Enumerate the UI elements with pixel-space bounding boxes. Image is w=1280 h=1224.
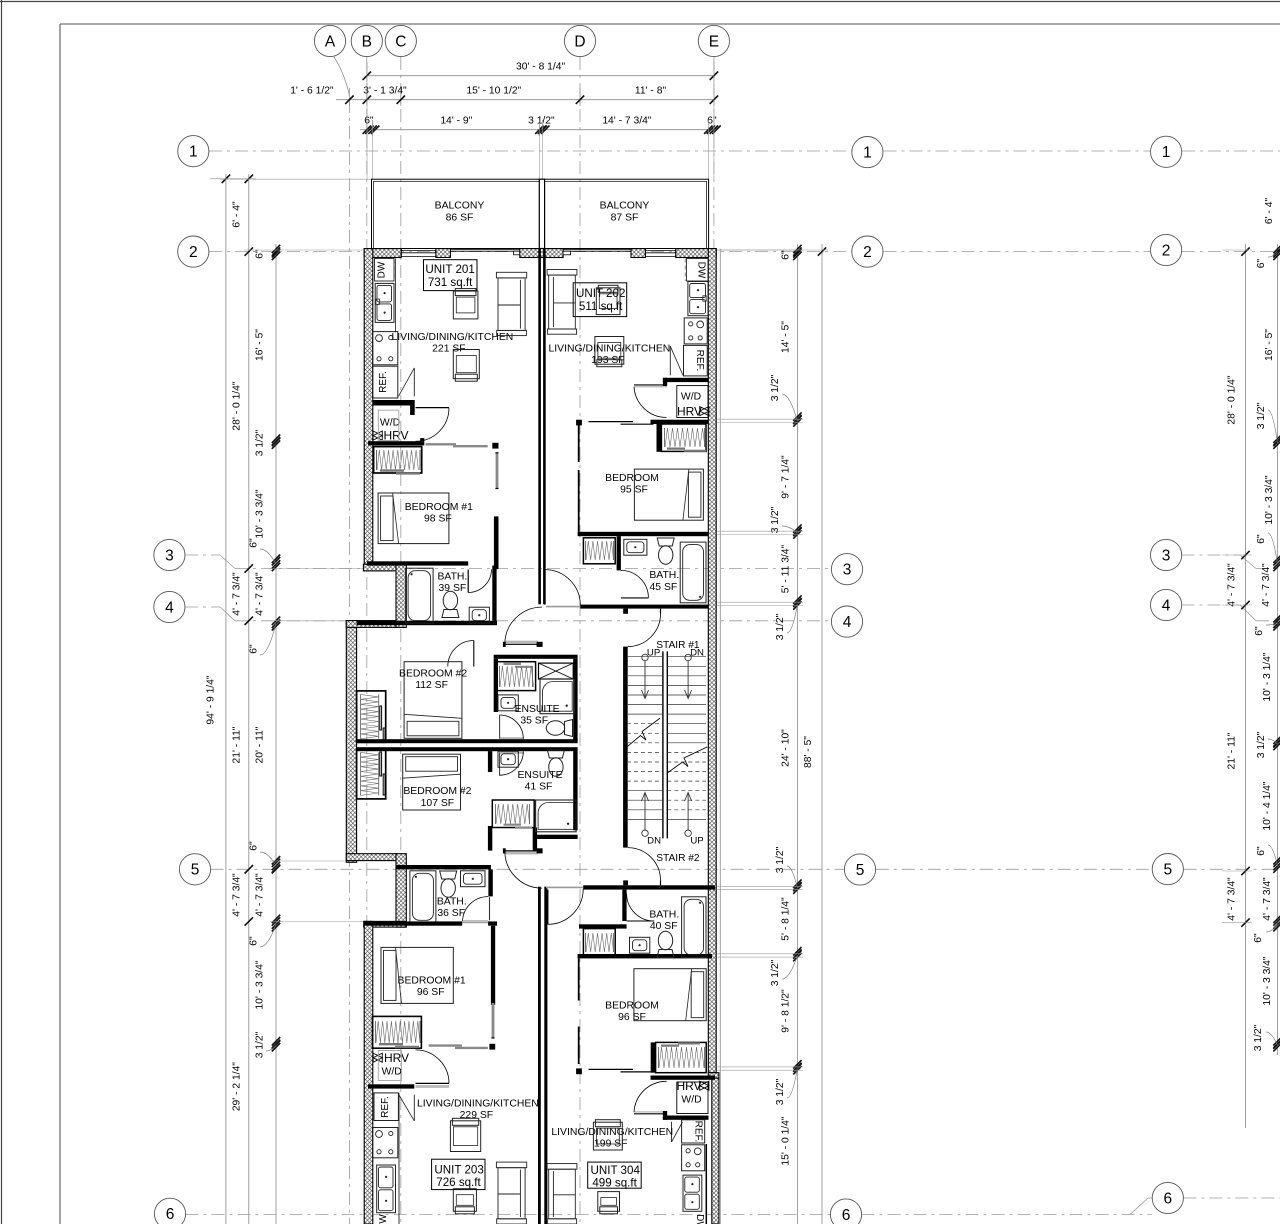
svg-text:D: D — [574, 33, 585, 50]
svg-text:6' - 4": 6' - 4" — [1264, 198, 1275, 225]
svg-text:3 1/2": 3 1/2" — [770, 374, 781, 401]
svg-text:DN: DN — [690, 648, 704, 659]
svg-text:1: 1 — [1162, 144, 1171, 161]
svg-text:4: 4 — [843, 614, 852, 631]
svg-text:86 SF: 86 SF — [446, 213, 474, 224]
svg-text:6' - 4": 6' - 4" — [232, 201, 243, 228]
svg-text:5: 5 — [191, 862, 200, 879]
svg-text:W/D: W/D — [681, 1095, 701, 1106]
svg-text:28' - 0 1/4": 28' - 0 1/4" — [232, 381, 243, 430]
svg-text:45 SF: 45 SF — [650, 582, 678, 593]
svg-text:229 SF: 229 SF — [460, 1110, 494, 1121]
svg-text:REF.: REF. — [378, 371, 389, 393]
svg-text:21' - 11": 21' - 11" — [1227, 732, 1238, 769]
svg-text:3 1/2": 3 1/2" — [255, 429, 266, 456]
svg-text:BEDROOM #2: BEDROOM #2 — [403, 786, 471, 797]
svg-text:112 SF: 112 SF — [415, 680, 448, 691]
svg-text:3 1/2": 3 1/2" — [775, 613, 786, 640]
svg-text:14' - 9": 14' - 9" — [440, 115, 472, 126]
svg-text:88' - 5": 88' - 5" — [803, 736, 814, 768]
svg-text:6": 6" — [1254, 626, 1265, 636]
svg-text:BEDROOM: BEDROOM — [605, 1000, 659, 1011]
svg-text:3 1/2": 3 1/2" — [1253, 1024, 1264, 1051]
svg-text:B: B — [362, 33, 372, 50]
svg-text:6: 6 — [842, 1207, 851, 1224]
svg-text:1' - 6 1/2": 1' - 6 1/2" — [290, 85, 334, 96]
svg-text:96 SF: 96 SF — [618, 1012, 646, 1023]
svg-text:HRV: HRV — [676, 1079, 701, 1093]
svg-text:726 sq.ft: 726 sq.ft — [436, 1176, 481, 1189]
svg-text:6": 6" — [781, 250, 792, 260]
svg-text:UP: UP — [647, 648, 660, 659]
svg-text:20' - 11": 20' - 11" — [255, 726, 266, 763]
svg-text:BEDROOM #1: BEDROOM #1 — [405, 502, 473, 513]
svg-text:499 sq.ft: 499 sq.ft — [592, 1176, 637, 1189]
svg-text:6": 6" — [249, 841, 260, 851]
svg-text:3: 3 — [843, 562, 852, 579]
svg-text:3 1/2": 3 1/2" — [770, 506, 781, 533]
svg-text:4' - 7 3/4": 4' - 7 3/4" — [255, 572, 266, 616]
svg-text:16' - 5": 16' - 5" — [255, 329, 266, 361]
svg-text:98 SF: 98 SF — [424, 513, 452, 524]
svg-text:4' - 7 3/4": 4' - 7 3/4" — [232, 572, 243, 616]
svg-text:5: 5 — [856, 862, 865, 879]
svg-text:4' - 7 3/4": 4' - 7 3/4" — [1227, 563, 1238, 607]
svg-text:4' - 7 3/4": 4' - 7 3/4" — [1227, 877, 1238, 921]
svg-text:W/D: W/D — [382, 1067, 402, 1078]
svg-text:30' - 8 1/4": 30' - 8 1/4" — [516, 62, 565, 73]
svg-text:REF.: REF. — [694, 350, 705, 372]
svg-text:15' - 10 1/2": 15' - 10 1/2" — [466, 85, 521, 96]
svg-text:3' - 1 3/4": 3' - 1 3/4" — [363, 85, 407, 96]
svg-text:4: 4 — [1162, 597, 1171, 614]
svg-text:DW: DW — [694, 1214, 705, 1224]
svg-text:5: 5 — [1163, 861, 1172, 878]
svg-text:10' - 3 1/4": 10' - 3 1/4" — [1262, 652, 1273, 701]
svg-text:4' - 7 3/4": 4' - 7 3/4" — [1261, 563, 1272, 607]
svg-text:9' - 7 1/4": 9' - 7 1/4" — [781, 455, 792, 499]
svg-text:BEDROOM: BEDROOM — [605, 473, 659, 484]
svg-text:6": 6" — [1256, 846, 1267, 856]
svg-text:10' - 3 3/4": 10' - 3 3/4" — [1262, 956, 1273, 1005]
svg-text:3 1/2": 3 1/2" — [775, 846, 786, 873]
svg-text:28' - 0 1/4": 28' - 0 1/4" — [1227, 375, 1238, 424]
svg-text:107 SF: 107 SF — [421, 798, 455, 809]
svg-text:4: 4 — [165, 599, 174, 616]
svg-text:3 1/2": 3 1/2" — [1256, 402, 1267, 429]
svg-text:3 1/2": 3 1/2" — [775, 1078, 786, 1105]
svg-text:21' - 11": 21' - 11" — [232, 726, 243, 763]
svg-text:4' - 7 3/4": 4' - 7 3/4" — [232, 873, 243, 917]
svg-text:W/D: W/D — [681, 392, 701, 403]
svg-text:UP: UP — [690, 835, 703, 846]
svg-text:16' - 5": 16' - 5" — [1264, 329, 1275, 361]
svg-text:3 1/2": 3 1/2" — [528, 115, 555, 126]
svg-text:HRV: HRV — [677, 404, 702, 418]
svg-text:LIVING/DINING/KITCHEN: LIVING/DINING/KITCHEN — [391, 332, 513, 343]
svg-text:DN: DN — [647, 835, 661, 846]
svg-text:REF.: REF. — [380, 1096, 391, 1118]
svg-text:1: 1 — [863, 144, 872, 161]
svg-text:6": 6" — [1256, 534, 1267, 544]
svg-text:24' - 10": 24' - 10" — [781, 729, 792, 767]
svg-text:2: 2 — [1162, 242, 1171, 259]
svg-text:W/D: W/D — [380, 418, 400, 429]
svg-text:6": 6" — [1256, 258, 1267, 268]
svg-text:BATH.: BATH. — [437, 897, 467, 908]
svg-text:REF.: REF. — [693, 1121, 704, 1143]
svg-text:35 SF: 35 SF — [520, 715, 548, 726]
svg-text:10' - 3 3/4": 10' - 3 3/4" — [255, 489, 266, 538]
svg-text:BATH.: BATH. — [649, 910, 679, 921]
svg-text:BATH.: BATH. — [437, 572, 467, 583]
svg-text:6": 6" — [249, 936, 260, 946]
svg-text:6": 6" — [249, 538, 260, 548]
svg-text:221 SF: 221 SF — [432, 343, 466, 354]
svg-text:10' - 3 3/4": 10' - 3 3/4" — [255, 960, 266, 1009]
svg-text:6: 6 — [166, 1206, 175, 1223]
svg-text:UNIT 201: UNIT 201 — [425, 263, 474, 276]
svg-text:40 SF: 40 SF — [650, 921, 678, 932]
svg-text:5' - 8 1/4": 5' - 8 1/4" — [781, 897, 792, 941]
svg-text:6": 6" — [707, 115, 717, 126]
svg-text:2: 2 — [863, 244, 872, 261]
svg-text:C: C — [395, 33, 406, 50]
svg-text:BEDROOM #1: BEDROOM #1 — [398, 976, 466, 987]
svg-text:UNIT 304: UNIT 304 — [590, 1164, 640, 1177]
svg-text:LIVING/DINING/KITCHEN: LIVING/DINING/KITCHEN — [551, 1127, 673, 1138]
svg-text:41 SF: 41 SF — [525, 781, 553, 792]
svg-text:HRV: HRV — [384, 1051, 409, 1065]
svg-text:10' - 3 3/4": 10' - 3 3/4" — [1264, 475, 1275, 524]
svg-text:87 SF: 87 SF — [611, 213, 639, 224]
svg-text:LIVING/DINING/KITCHEN: LIVING/DINING/KITCHEN — [417, 1099, 539, 1110]
svg-text:6: 6 — [1163, 1190, 1172, 1207]
svg-text:1: 1 — [189, 144, 198, 161]
svg-text:15' - 0 1/4": 15' - 0 1/4" — [781, 1116, 792, 1165]
svg-text:9' - 8 1/2": 9' - 8 1/2" — [781, 989, 792, 1033]
svg-text:4' - 7 3/4": 4' - 7 3/4" — [255, 873, 266, 917]
svg-text:10' - 4 1/4": 10' - 4 1/4" — [1262, 781, 1273, 830]
svg-text:DW: DW — [377, 261, 388, 278]
svg-text:3 1/2": 3 1/2" — [1256, 731, 1267, 758]
svg-text:95 SF: 95 SF — [620, 485, 648, 496]
svg-text:5' - 11 3/4": 5' - 11 3/4" — [781, 544, 792, 593]
svg-text:3: 3 — [1162, 547, 1171, 564]
svg-text:ENSUITE: ENSUITE — [517, 770, 562, 781]
svg-text:14' - 5": 14' - 5" — [781, 321, 792, 353]
svg-text:4' - 7 3/4": 4' - 7 3/4" — [1262, 877, 1273, 921]
svg-text:BATH.: BATH. — [649, 570, 679, 581]
svg-text:E: E — [709, 33, 719, 50]
svg-text:BALCONY: BALCONY — [435, 201, 485, 212]
svg-text:6": 6" — [1253, 933, 1264, 943]
svg-text:3: 3 — [165, 547, 174, 564]
svg-text:96 SF: 96 SF — [417, 987, 445, 998]
svg-text:UNIT 203: UNIT 203 — [434, 1163, 483, 1176]
svg-text:2: 2 — [189, 244, 198, 261]
svg-text:731 sq.ft: 731 sq.ft — [428, 276, 473, 289]
svg-text:3 1/2": 3 1/2" — [255, 1031, 266, 1058]
svg-text:DW: DW — [378, 1214, 389, 1224]
svg-text:DW: DW — [696, 262, 707, 279]
svg-text:STAIR #2: STAIR #2 — [656, 853, 700, 864]
svg-text:39 SF: 39 SF — [439, 583, 467, 594]
svg-text:6": 6" — [249, 644, 260, 654]
svg-text:14' - 7 3/4": 14' - 7 3/4" — [602, 115, 651, 126]
svg-text:3 1/2": 3 1/2" — [770, 959, 781, 986]
svg-text:94' - 9 1/4": 94' - 9 1/4" — [206, 675, 217, 724]
svg-text:BALCONY: BALCONY — [600, 201, 650, 212]
svg-text:11' - 8": 11' - 8" — [635, 85, 667, 96]
svg-text:6": 6" — [255, 249, 266, 259]
svg-text:ENSUITE: ENSUITE — [515, 704, 560, 715]
svg-text:BEDROOM #2: BEDROOM #2 — [399, 669, 467, 680]
svg-text:36 SF: 36 SF — [437, 908, 465, 919]
svg-text:29' - 2 1/4": 29' - 2 1/4" — [232, 1062, 243, 1111]
svg-text:LIVING/DINING/KITCHEN: LIVING/DINING/KITCHEN — [548, 344, 670, 355]
svg-text:A: A — [325, 33, 336, 50]
